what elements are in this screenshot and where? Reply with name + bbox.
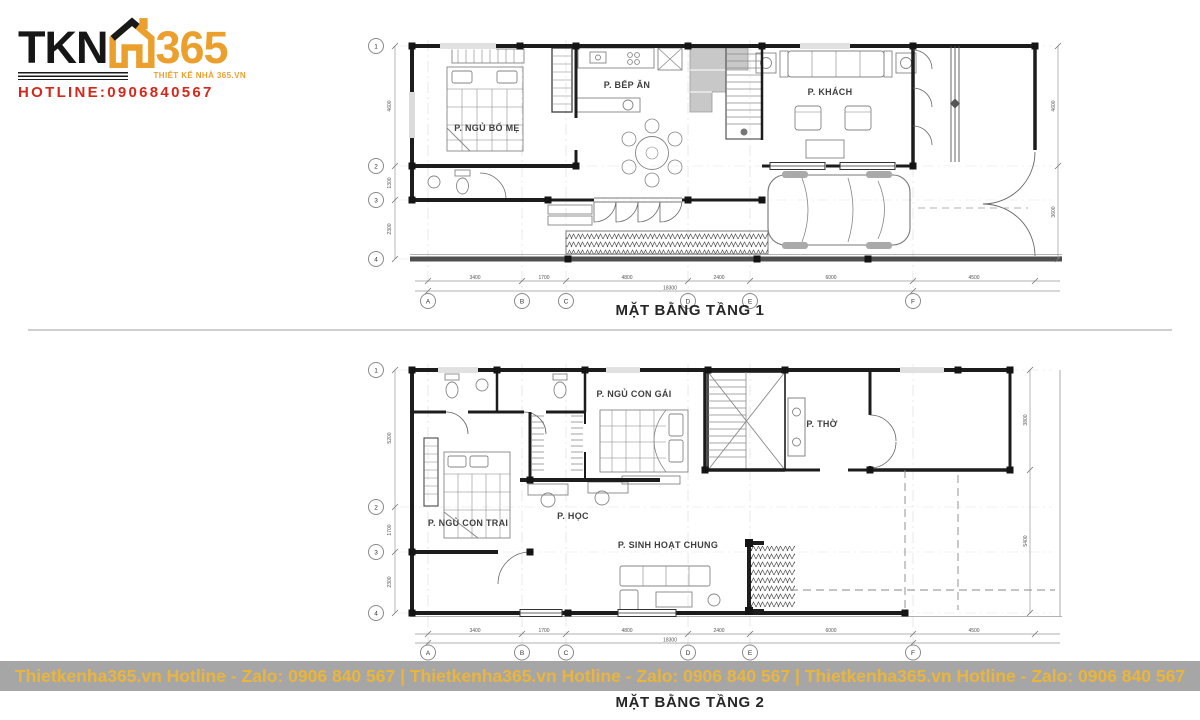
floor2-stairs [708, 372, 785, 470]
floor2-planter [751, 546, 795, 608]
dim-label: 2400 [713, 275, 724, 281]
floor2-grid-bubbles-rows: 1 2 3 4 [369, 363, 384, 621]
grid-bubble-label: E [748, 650, 753, 657]
floor1-dimensions-left: 4600 1300 2300 1 2 3 4 [369, 39, 399, 267]
room-label-daughter-bedroom: P. NGỦ CON GÁI [596, 388, 671, 399]
dim-label: 4500 [968, 628, 979, 634]
grid-bubble-label: D [686, 650, 691, 657]
dim-label: 2400 [713, 628, 724, 634]
car-drawing [768, 171, 910, 249]
floor2-plan-drawing: P. NGỦ CON GÁI P. NGỦ CON TRAI P. HỌC P.… [350, 350, 1080, 662]
dim-label: 2300 [387, 223, 393, 234]
floor1-entry-landing [690, 48, 748, 112]
room-label-kitchen-dining: P. BẾP ĂN [604, 80, 650, 90]
floor1-dimensions-right: 4600 3600 [1051, 43, 1061, 262]
dim-label: 3800 [1023, 414, 1029, 425]
dim-total-label: 18300 [663, 638, 677, 644]
grid-bubble-label: A [426, 650, 431, 657]
floor1-walls [410, 46, 1062, 259]
dim-label: 5200 [387, 432, 393, 443]
dim-label: 1700 [387, 524, 393, 535]
grid-bubble-label: 4 [374, 611, 378, 618]
grid-bubble-label: C [564, 650, 569, 657]
grid-bubble-label: 3 [374, 550, 378, 557]
floor2-dimensions-bottom: 3400 1700 4800 2400 6000 4500 18300 A B … [415, 628, 1060, 660]
floor2-dimensions-left: 5200 1700 2300 1 2 3 4 [369, 363, 399, 621]
section-divider [28, 329, 1172, 331]
logo-sub-row: THIẾT KẾ NHÀ 365.VN [18, 71, 246, 80]
grid-bubble-label: 4 [374, 257, 378, 264]
dim-label: 5400 [1023, 535, 1029, 546]
dim-label: 1700 [538, 275, 549, 281]
logo-hotline: HOTLINE:0906840567 [18, 84, 246, 101]
room-label-parents-bedroom: P. NGỦ BỐ MẸ [454, 122, 519, 133]
dim-label: 4800 [621, 628, 632, 634]
floor1-garden-strip [566, 231, 768, 254]
contact-banner-text: Thietkenha365.vn Hotline - Zalo: 0906 84… [15, 666, 1185, 687]
floor2-grid-bubbles-cols: A B C D E F [421, 645, 921, 660]
dim-label: 4500 [968, 275, 979, 281]
floor1-stairs [726, 47, 762, 139]
dim-label: 3600 [1051, 206, 1057, 217]
grid-bubble-label: 3 [374, 198, 378, 205]
room-label-worship-room: P. THỜ [806, 418, 837, 429]
logo-stripes-decoration [18, 72, 128, 80]
floor2-columns [409, 367, 1014, 617]
logo-brand-number: 365 [155, 28, 227, 68]
logo-brand-text: TKN [18, 28, 107, 68]
dim-label: 1300 [387, 177, 393, 188]
dim-label: 4600 [387, 100, 393, 111]
floor2-dimensions-right: 3800 5400 [1023, 367, 1033, 616]
contact-banner: Thietkenha365.vn Hotline - Zalo: 0906 84… [0, 661, 1200, 691]
floor1-title: MẶT BẰNG TẦNG 1 [350, 302, 1030, 319]
room-label-study-room: P. HỌC [557, 511, 589, 521]
floor1-plan-drawing: P. NGỦ BỐ MẸ P. BẾP ĂN P. KHÁCH 3400 170… [350, 25, 1080, 335]
grid-bubble-label: 2 [374, 505, 378, 512]
grid-bubble-label: 1 [374, 368, 378, 375]
house-icon [109, 16, 155, 68]
dim-label: 1700 [538, 628, 549, 634]
logo-tagline: THIẾT KẾ NHÀ 365.VN [153, 71, 246, 80]
dim-label: 2300 [387, 576, 393, 587]
grid-bubble-label: 2 [374, 164, 378, 171]
floor1-grid-bubbles-rows: 1 2 3 4 [369, 39, 384, 267]
room-label-living-room: P. KHÁCH [808, 87, 853, 97]
dim-label: 3400 [469, 628, 480, 634]
grid-bubble-label: F [911, 650, 915, 657]
dim-label: 6000 [825, 628, 836, 634]
room-label-family-room: P. SINH HOẠT CHUNG [618, 540, 718, 550]
dim-label: 6000 [825, 275, 836, 281]
grid-bubble-label: B [520, 650, 524, 657]
grid-bubble-label: 1 [374, 44, 378, 51]
dim-label: 4800 [621, 275, 632, 281]
dim-label: 3400 [469, 275, 480, 281]
logo-brand-row: TKN 365 [18, 14, 246, 68]
logo: TKN 365 THIẾT KẾ NHÀ 365.VN HOTLINE:0906… [18, 14, 246, 101]
dim-label: 4600 [1051, 100, 1057, 111]
room-label-son-bedroom: P. NGỦ CON TRAI [428, 517, 508, 528]
floor2-title: MẶT BẰNG TẦNG 2 [350, 694, 1030, 711]
dim-total-label: 18300 [663, 286, 677, 292]
